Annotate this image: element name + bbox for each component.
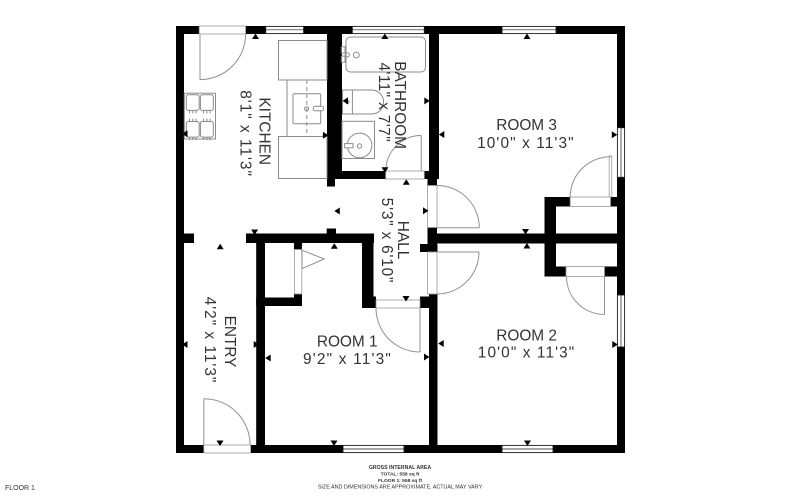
svg-text:FLOOR 1: 558 sq ft: FLOOR 1: 558 sq ft	[378, 478, 422, 484]
svg-text:10'0" x 11'3": 10'0" x 11'3"	[477, 135, 575, 152]
svg-text:10'0" x 11'3": 10'0" x 11'3"	[478, 345, 576, 362]
svg-text:9'2" x 11'3": 9'2" x 11'3"	[303, 351, 392, 368]
svg-text:ROOM 1: ROOM 1	[317, 334, 378, 351]
svg-text:4'2" x 11'3": 4'2" x 11'3"	[201, 297, 218, 384]
svg-text:TOTAL: 558 sq ft: TOTAL: 558 sq ft	[381, 471, 420, 477]
svg-text:FLOOR 1: FLOOR 1	[5, 485, 35, 492]
svg-text:ENTRY: ENTRY	[221, 316, 238, 368]
svg-text:5'3" x 6'10": 5'3" x 6'10"	[378, 198, 395, 283]
svg-text:BATHROOM: BATHROOM	[391, 61, 408, 149]
svg-text:KITCHEN: KITCHEN	[256, 97, 273, 165]
svg-text:SIZE AND DIMENSIONS ARE APPROX: SIZE AND DIMENSIONS ARE APPROXIMATE, ACT…	[318, 484, 483, 490]
svg-text:HALL: HALL	[394, 221, 411, 260]
svg-text:ROOM 3: ROOM 3	[496, 117, 557, 134]
svg-text:4'11" x 7'7": 4'11" x 7'7"	[375, 63, 392, 143]
svg-text:ROOM 2: ROOM 2	[496, 328, 557, 345]
svg-text:8'1" x 11'3": 8'1" x 11'3"	[237, 90, 254, 177]
svg-text:GROSS INTERNAL AREA: GROSS INTERNAL AREA	[369, 465, 432, 471]
